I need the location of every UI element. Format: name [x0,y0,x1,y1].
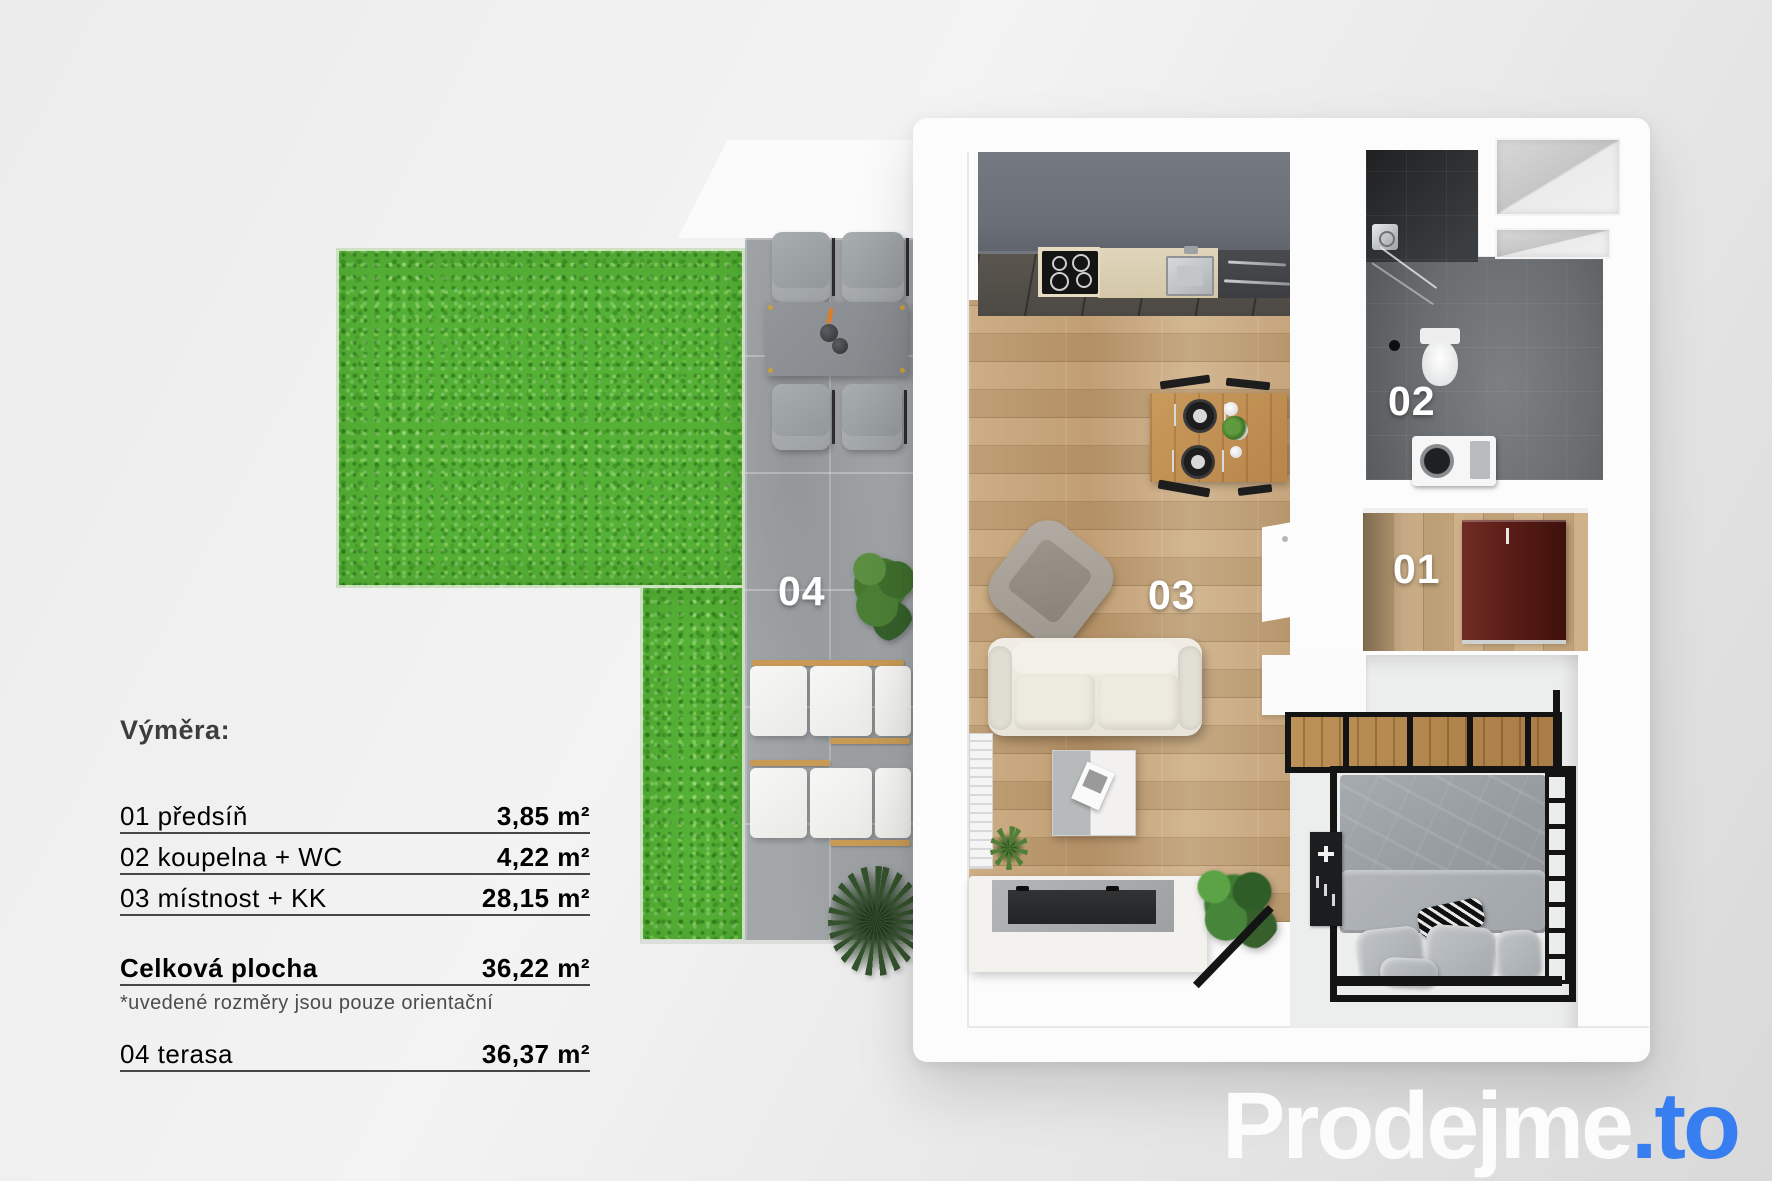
cup [1230,446,1242,458]
dining-table [1150,393,1287,482]
legend-row-hall: 01 předsíň 3,85 m² [120,798,590,834]
wall-niche [1495,228,1611,259]
bed-ladder [1545,772,1569,984]
terrace-palm-plant [828,866,923,976]
brand-logo: Prodejme.to [1222,1072,1738,1181]
cube-seat [750,666,807,736]
cube-seat [875,768,911,838]
kitchen-sink [1166,256,1214,296]
brand-logo-tld: .to [1631,1073,1738,1179]
legend-row-living: 03 místnost + KK 28,15 m² [120,880,590,916]
brand-logo-name: Prodejme [1222,1073,1631,1179]
legend-total-label: Celková plocha [120,953,318,984]
legend: Výměra: [120,715,590,746]
cube-seat [810,768,872,838]
outdoor-chair [842,232,904,302]
burner [1072,254,1090,272]
washing-machine [1412,436,1496,486]
terrace-tree [843,538,919,642]
terrace-roof-slab [678,140,913,238]
garden-grass-strip [640,585,745,942]
legend-row-living-label: 03 místnost + KK [120,883,327,914]
white-cabinet [1262,655,1366,715]
drain-fixture [1389,340,1400,351]
room-label-terrace: 04 [778,568,826,615]
outdoor-chair [772,384,830,450]
outdoor-chair [772,232,830,302]
kitchen-faucet [1184,246,1198,254]
pillow [1495,929,1542,981]
entrance-door-leaf [1262,518,1315,622]
wardrobe [1462,520,1566,640]
cube-seat [875,666,911,736]
legend-total-value: 36,22 m² [482,953,590,984]
sofa [988,638,1202,736]
sunken-hatch-opening [1008,890,1156,924]
cup [1224,402,1238,416]
aloe-plant [990,826,1028,870]
cutlery [1174,404,1176,426]
cube-wood-rail [830,840,910,846]
legend-note: *uvedené rozměry jsou pouze orientační [120,992,493,1015]
burner [1076,272,1092,288]
legend-row-hall-label: 01 předsíň [120,801,248,832]
hatch-handle [1106,886,1119,891]
cube-wood-rail [750,760,830,766]
bed-frame-post [1553,690,1560,770]
closet-wood-shelf [1285,712,1562,773]
legend-row-living-value: 28,15 m² [482,883,590,914]
cutlery [1222,450,1224,472]
legend-total-row: Celková plocha 36,22 m² [120,950,590,986]
room-label-hall: 01 [1393,546,1441,593]
cube-seat [750,768,807,838]
legend-row-terrace: 04 terasa 36,37 m² [120,1036,590,1072]
hanging-organizer [1310,832,1342,926]
floorplan-image: Výměra: 01 předsíň 3,85 m² 02 koupelna +… [0,0,1772,1181]
hatch-handle [1016,886,1029,891]
table-plant [1228,420,1248,440]
shower-head [1372,224,1398,250]
kitchen-upper-cabinets [978,152,1340,254]
legend-row-bathroom-value: 4,22 m² [497,842,590,873]
wall-niche [1495,138,1621,216]
legend-row-bathroom: 02 koupelna + WC 4,22 m² [120,839,590,875]
room-label-bathroom: 02 [1388,378,1436,425]
garden-grass [336,248,745,588]
plate [1183,399,1217,433]
legend-row-hall-value: 3,85 m² [497,801,590,832]
legend-row-bathroom-label: 02 koupelna + WC [120,842,343,873]
room-label-living: 03 [1148,572,1196,619]
plate [1181,445,1215,479]
cooktop [1042,251,1098,294]
cube-wood-rail [830,738,910,744]
bed-frame-bottom-bar [1330,976,1562,986]
burner [1052,256,1067,271]
legend-row-terrace-value: 36,37 m² [482,1039,590,1070]
table-plant-pot [832,338,848,354]
legend-title: Výměra: [120,715,590,746]
cube-seat [810,666,872,736]
burner [1050,272,1069,291]
outdoor-chair [842,384,902,450]
wardrobe-base-strip [1462,640,1566,644]
legend-row-terrace-label: 04 terasa [120,1039,233,1070]
cutlery [1172,450,1174,472]
